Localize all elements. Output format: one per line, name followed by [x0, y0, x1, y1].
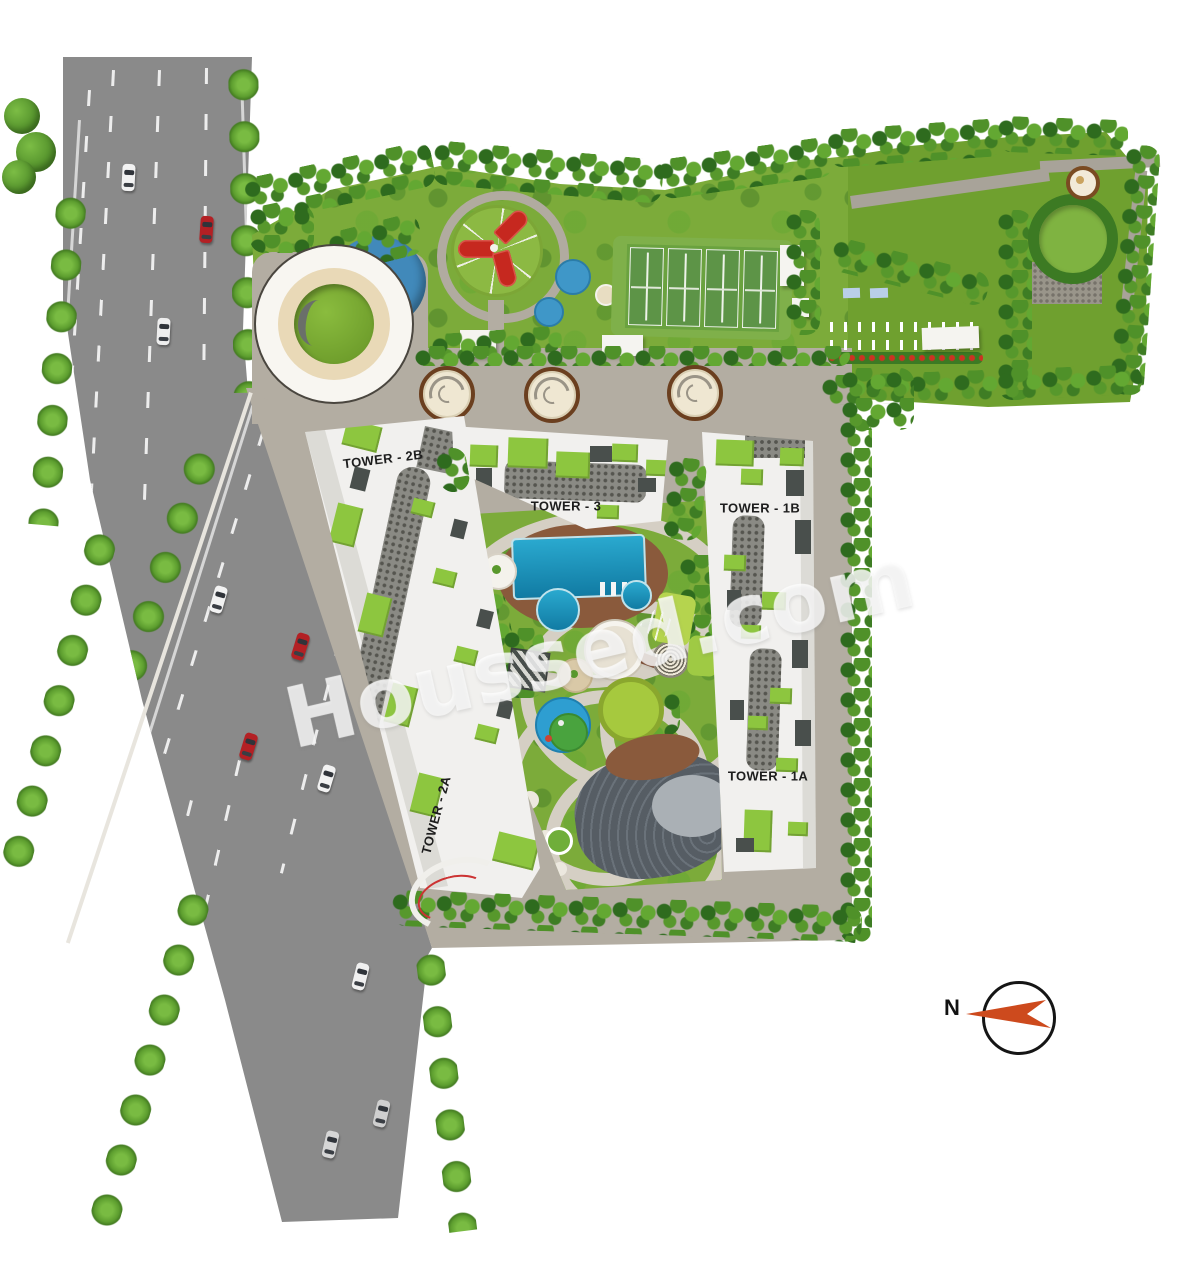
- roof-terrace-dark: [730, 700, 744, 720]
- garden-table: [870, 288, 888, 299]
- garden-pavilion: [922, 326, 980, 350]
- garden-table: [843, 288, 860, 299]
- compass: N: [930, 960, 1110, 1090]
- perimeter-hedge: [997, 116, 1128, 157]
- lane-marking: [86, 70, 115, 569]
- fountain-center: [492, 565, 501, 574]
- play-toy: [558, 720, 564, 726]
- splash-pad: [555, 259, 591, 295]
- tennis-court: [628, 247, 664, 326]
- avenue-trees-left: [87, 880, 215, 1234]
- splash-pad: [534, 297, 564, 327]
- car: [316, 764, 336, 794]
- play-court-hub: [490, 244, 498, 252]
- tennis-court: [704, 249, 740, 328]
- car: [199, 216, 214, 244]
- driveway-mandala: [667, 365, 723, 421]
- avenue-trees-right: [414, 942, 477, 1233]
- splash-play-lawn: [549, 713, 588, 752]
- roof-garden-patch: [716, 439, 755, 466]
- site-plan-canvas: TOWER - 2B TOWER - 3 TOWER - 1B TOWER - …: [0, 0, 1200, 1274]
- driveway-hedge: [415, 346, 850, 366]
- shrub-strip: [662, 457, 707, 542]
- roof-terrace-dark: [638, 478, 656, 492]
- compass-arrow-icon: [966, 999, 1058, 1029]
- basketball-half-court: [458, 240, 494, 258]
- driveway-mandala: [419, 366, 475, 422]
- roof-garden-patch: [492, 831, 540, 870]
- car: [290, 632, 310, 662]
- car: [121, 164, 135, 192]
- car: [351, 962, 370, 991]
- tree-ring-lawn: [1028, 194, 1118, 284]
- roof-garden-patch: [741, 469, 764, 486]
- tennis-courts: [625, 244, 781, 332]
- roof-terrace-dark: [450, 519, 468, 540]
- tennis-court: [666, 248, 702, 327]
- roof-garden-patch: [646, 460, 669, 477]
- car: [156, 318, 170, 346]
- site-hedge-right: [840, 418, 872, 943]
- roof-garden-patch: [556, 451, 591, 478]
- flower-beds: [828, 352, 983, 364]
- lawn-mound: [250, 205, 314, 253]
- tower-core-band: [746, 648, 782, 771]
- roof-terrace-dark: [795, 720, 811, 746]
- tower-3-label: TOWER - 3: [531, 499, 602, 514]
- site-hedge-corner: [842, 368, 914, 430]
- lane-marking: [143, 70, 161, 500]
- road-edge-line: [79, 400, 256, 954]
- car: [238, 732, 258, 762]
- car: [321, 1130, 340, 1159]
- car: [209, 585, 229, 615]
- roof-garden-patch: [474, 724, 499, 745]
- tower-1b-label: TOWER - 1B: [720, 501, 800, 516]
- shrub-strip: [786, 210, 820, 335]
- driveway-mandala: [524, 367, 580, 423]
- roof-garden-patch: [780, 448, 805, 467]
- roof-terrace-dark: [786, 470, 804, 496]
- roof-garden-patch: [470, 445, 499, 468]
- roof-terrace-dark: [590, 446, 612, 462]
- tennis-court: [742, 250, 778, 329]
- roof-terrace-dark: [736, 838, 754, 852]
- roof-garden-patch: [788, 822, 808, 837]
- corner-tree: [4, 98, 40, 134]
- tower-1a-label: TOWER - 1A: [728, 769, 808, 784]
- roof-garden-patch: [770, 688, 793, 705]
- garden-gazebo-center: [1076, 176, 1084, 184]
- play-toy: [545, 735, 552, 742]
- roof-garden-patch: [432, 568, 457, 589]
- roof-garden-patch: [748, 716, 768, 731]
- garden-gazebo: [1066, 166, 1100, 200]
- roof-garden-patch: [507, 437, 548, 468]
- corner-tree: [2, 160, 36, 194]
- roof-garden-patch: [612, 444, 639, 463]
- car: [372, 1099, 391, 1128]
- compass-north-label: N: [944, 995, 960, 1021]
